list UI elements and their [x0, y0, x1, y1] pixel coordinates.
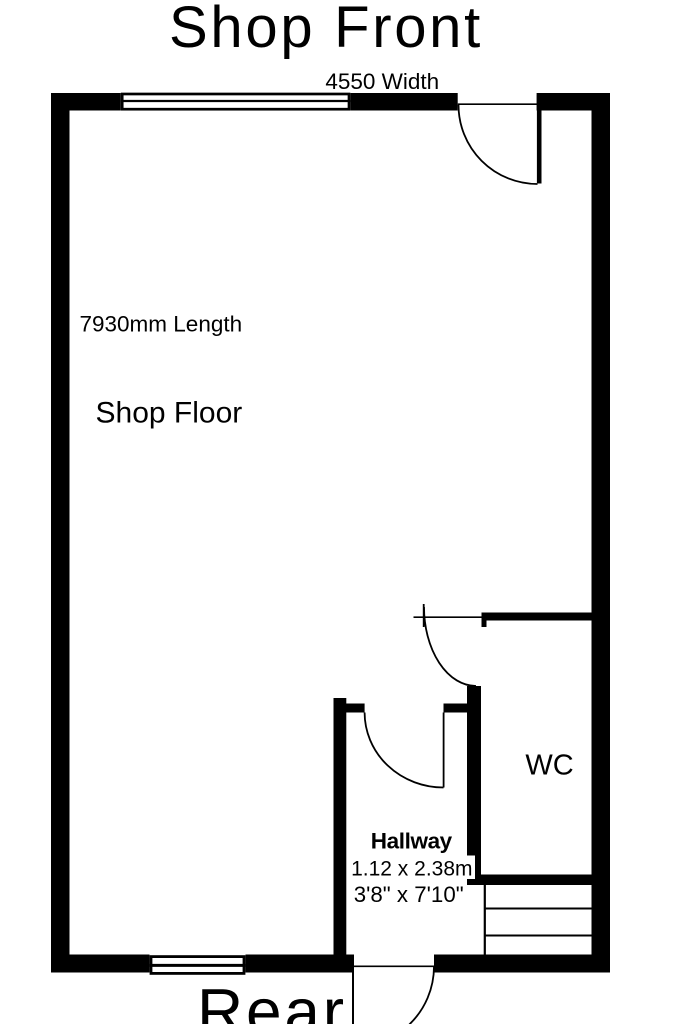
svg-text:WC: WC — [525, 750, 573, 782]
svg-text:4550 Width: 4550 Width — [325, 69, 439, 94]
svg-text:1.12 x 2.38m: 1.12 x 2.38m — [351, 857, 472, 880]
svg-text:7930mm Length: 7930mm Length — [80, 311, 243, 336]
svg-text:Rear: Rear — [197, 976, 347, 1024]
svg-text:Shop Front: Shop Front — [169, 0, 483, 60]
svg-text:Hallway: Hallway — [371, 829, 453, 854]
svg-text:Shop Floor: Shop Floor — [96, 397, 243, 430]
svg-text:3'8" x 7'10": 3'8" x 7'10" — [354, 882, 464, 907]
